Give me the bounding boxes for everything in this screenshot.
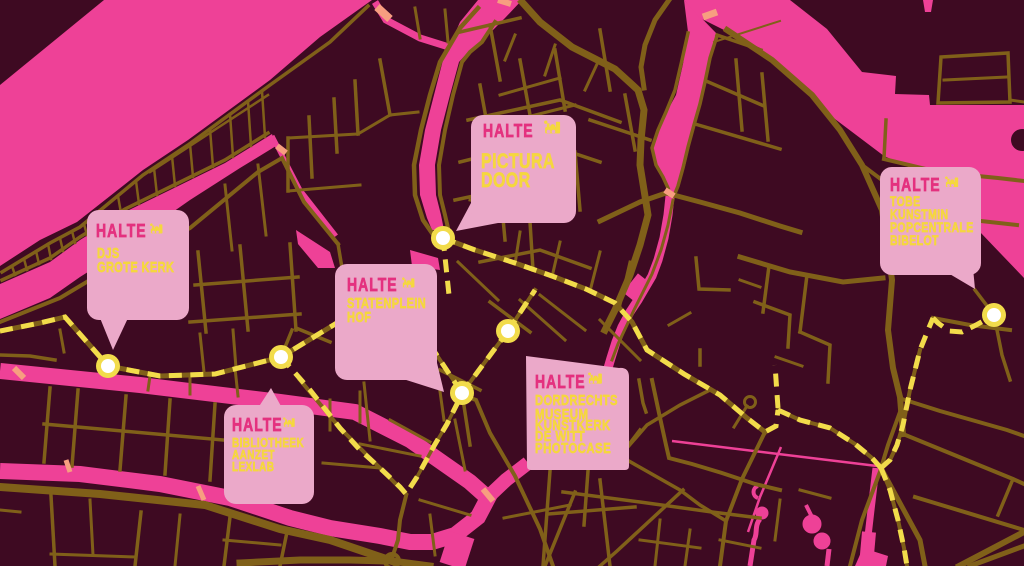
svg-text:GROTE KERK: GROTE KERK	[97, 259, 175, 276]
svg-text:HALTE: HALTE	[347, 275, 398, 295]
svg-text:HALTE: HALTE	[232, 415, 283, 435]
svg-text:BIBELOT: BIBELOT	[890, 233, 939, 249]
svg-text:PHOTOCASE: PHOTOCASE	[535, 440, 611, 457]
svg-text:HALTE: HALTE	[535, 372, 586, 392]
svg-text:HALTE: HALTE	[890, 175, 941, 195]
svg-text:HALTE: HALTE	[96, 221, 147, 241]
svg-text:HALTE: HALTE	[483, 121, 534, 141]
svg-text:LEXLAB: LEXLAB	[232, 461, 274, 474]
svg-text:DOOR: DOOR	[481, 168, 531, 192]
svg-text:HOF: HOF	[347, 309, 371, 326]
